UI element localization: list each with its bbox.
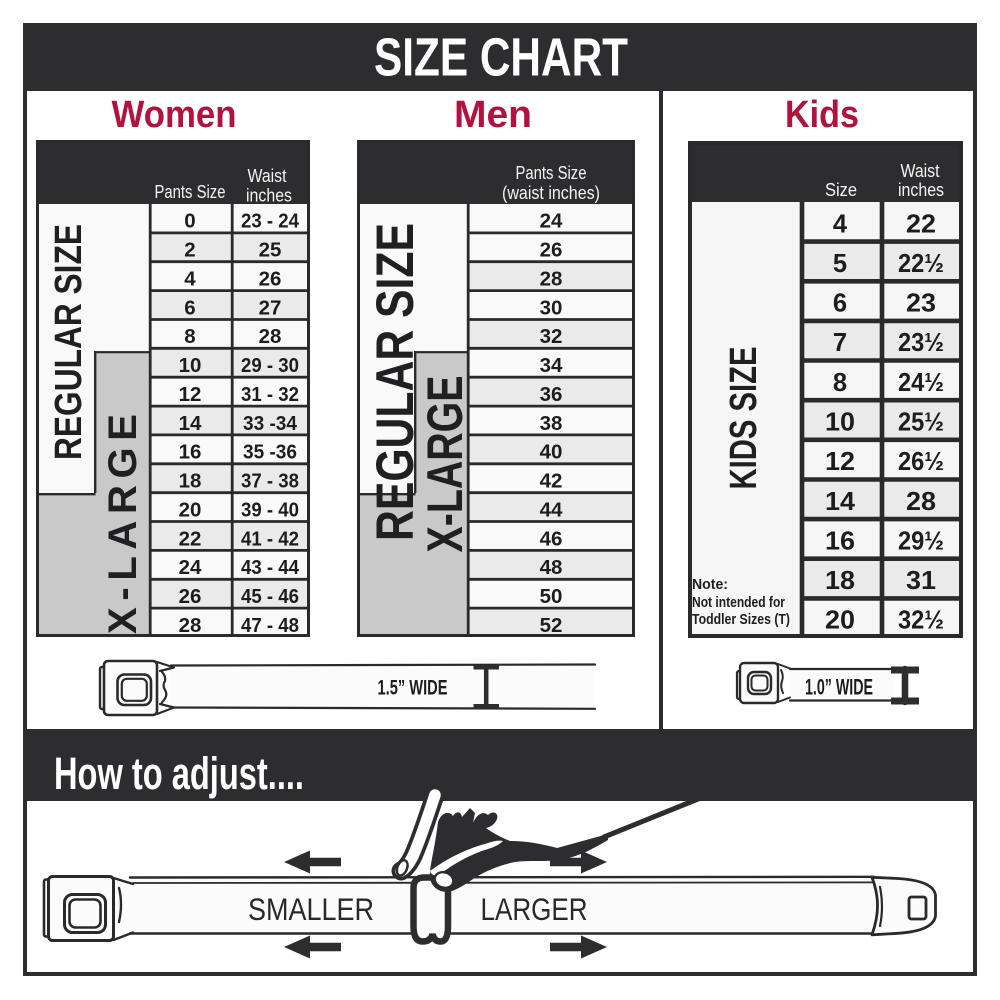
svg-text:26½: 26½ bbox=[898, 448, 944, 476]
svg-text:48: 48 bbox=[540, 556, 563, 579]
svg-text:23 - 24: 23 - 24 bbox=[241, 210, 300, 233]
svg-text:X-LARGE: X-LARGE bbox=[417, 376, 473, 553]
svg-text:8: 8 bbox=[833, 369, 847, 397]
svg-text:34: 34 bbox=[540, 354, 563, 377]
svg-text:40: 40 bbox=[540, 441, 563, 464]
svg-text:24½: 24½ bbox=[898, 369, 944, 397]
svg-text:Size: Size bbox=[825, 180, 857, 200]
svg-text:14: 14 bbox=[179, 412, 202, 435]
svg-text:25½: 25½ bbox=[898, 409, 944, 437]
svg-text:42: 42 bbox=[540, 470, 563, 493]
svg-text:32: 32 bbox=[540, 325, 563, 348]
svg-text:LARGER: LARGER bbox=[481, 891, 588, 927]
svg-text:SMALLER: SMALLER bbox=[248, 891, 374, 927]
svg-text:45 - 46: 45 - 46 bbox=[241, 585, 299, 608]
svg-text:46: 46 bbox=[540, 527, 563, 550]
svg-text:KIDS SIZE: KIDS SIZE bbox=[723, 347, 765, 490]
svg-text:22: 22 bbox=[179, 527, 202, 550]
svg-text:28: 28 bbox=[540, 268, 563, 291]
svg-text:Waist: Waist bbox=[901, 161, 940, 181]
svg-text:31 - 32: 31 - 32 bbox=[241, 383, 299, 406]
svg-text:24: 24 bbox=[540, 210, 563, 233]
svg-text:Toddler Sizes (T): Toddler Sizes (T) bbox=[692, 611, 790, 628]
svg-text:23: 23 bbox=[906, 290, 936, 318]
svg-text:8: 8 bbox=[184, 325, 195, 348]
svg-text:inches: inches bbox=[898, 180, 944, 200]
svg-text:29 - 30: 29 - 30 bbox=[241, 354, 299, 377]
svg-text:50: 50 bbox=[540, 585, 563, 608]
svg-text:2: 2 bbox=[184, 239, 195, 262]
svg-text:24: 24 bbox=[179, 556, 202, 579]
svg-text:7: 7 bbox=[833, 329, 847, 357]
svg-text:23½: 23½ bbox=[898, 329, 944, 357]
svg-text:52: 52 bbox=[540, 614, 563, 637]
svg-text:27: 27 bbox=[259, 296, 282, 319]
svg-text:Pants Size: Pants Size bbox=[516, 163, 587, 183]
svg-text:31: 31 bbox=[906, 567, 936, 595]
svg-text:36: 36 bbox=[540, 383, 563, 406]
svg-text:10: 10 bbox=[825, 409, 855, 437]
svg-text:32½: 32½ bbox=[898, 607, 944, 635]
svg-text:6: 6 bbox=[833, 290, 847, 318]
svg-text:29½: 29½ bbox=[898, 527, 944, 555]
svg-text:35 -36: 35 -36 bbox=[243, 441, 297, 464]
svg-text:Pants Size: Pants Size bbox=[155, 182, 226, 202]
svg-text:Kids: Kids bbox=[785, 94, 859, 136]
svg-text:REGULAR SIZE: REGULAR SIZE bbox=[48, 224, 90, 460]
svg-text:22½: 22½ bbox=[898, 250, 944, 278]
svg-text:Note:: Note: bbox=[692, 576, 728, 593]
svg-text:18: 18 bbox=[179, 470, 202, 493]
svg-text:Not intended for: Not intended for bbox=[692, 594, 785, 611]
svg-text:44: 44 bbox=[540, 498, 563, 521]
svg-text:inches: inches bbox=[246, 186, 292, 206]
svg-text:Men: Men bbox=[454, 94, 532, 136]
svg-text:28: 28 bbox=[906, 488, 936, 516]
svg-text:25: 25 bbox=[259, 239, 282, 262]
svg-text:(waist inches): (waist inches) bbox=[502, 183, 600, 203]
svg-text:41 - 42: 41 - 42 bbox=[241, 527, 299, 550]
svg-text:20: 20 bbox=[179, 498, 202, 521]
svg-text:12: 12 bbox=[179, 383, 202, 406]
svg-text:38: 38 bbox=[540, 412, 563, 435]
svg-text:12: 12 bbox=[825, 448, 855, 476]
svg-text:26: 26 bbox=[179, 585, 202, 608]
svg-text:28: 28 bbox=[179, 614, 202, 637]
svg-text:How to adjust....: How to adjust.... bbox=[54, 748, 304, 799]
svg-text:43 - 44: 43 - 44 bbox=[241, 556, 300, 579]
svg-text:1.0” WIDE: 1.0” WIDE bbox=[805, 675, 873, 700]
svg-text:SIZE CHART: SIZE CHART bbox=[374, 28, 628, 88]
svg-text:33 -34: 33 -34 bbox=[243, 412, 298, 435]
svg-text:26: 26 bbox=[540, 239, 563, 262]
svg-text:10: 10 bbox=[179, 354, 202, 377]
svg-text:Women: Women bbox=[112, 94, 237, 136]
svg-text:1.5” WIDE: 1.5” WIDE bbox=[378, 676, 448, 700]
svg-text:5: 5 bbox=[833, 250, 847, 278]
svg-text:47 - 48: 47 - 48 bbox=[241, 614, 299, 637]
svg-text:18: 18 bbox=[825, 567, 855, 595]
svg-text:4: 4 bbox=[184, 268, 196, 291]
svg-text:Waist: Waist bbox=[248, 166, 287, 186]
svg-text:39 - 40: 39 - 40 bbox=[241, 498, 299, 521]
svg-text:37 - 38: 37 - 38 bbox=[241, 470, 299, 493]
svg-text:28: 28 bbox=[259, 325, 282, 348]
svg-text:6: 6 bbox=[184, 296, 195, 319]
svg-text:16: 16 bbox=[179, 441, 202, 464]
svg-text:14: 14 bbox=[825, 488, 856, 516]
svg-text:22: 22 bbox=[906, 210, 936, 238]
svg-text:20: 20 bbox=[825, 607, 855, 635]
svg-text:30: 30 bbox=[540, 296, 563, 319]
svg-text:0: 0 bbox=[184, 210, 195, 233]
svg-text:16: 16 bbox=[825, 527, 855, 555]
svg-text:4: 4 bbox=[833, 210, 848, 238]
svg-text:26: 26 bbox=[259, 268, 282, 291]
